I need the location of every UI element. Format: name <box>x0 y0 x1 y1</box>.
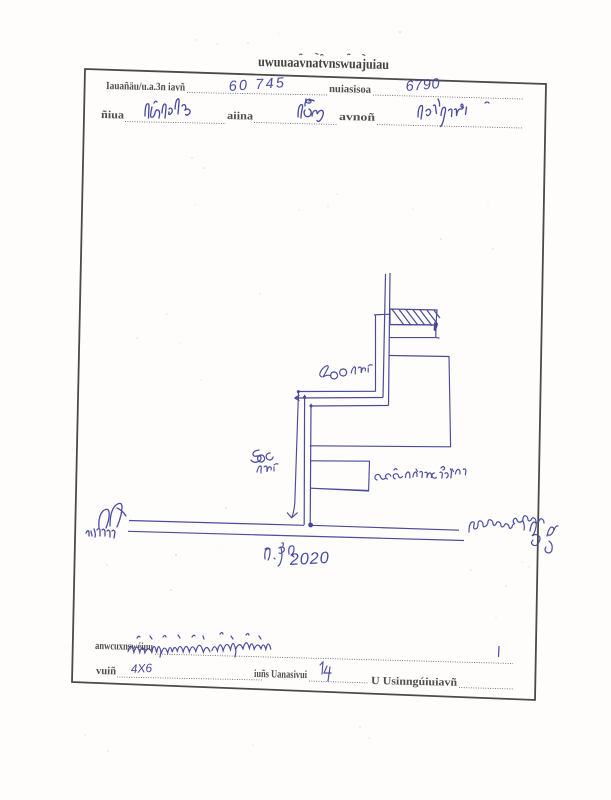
svg-text:vuiñ: vuiñ <box>96 665 116 677</box>
svg-text:nuiasisoa: nuiasisoa <box>329 83 372 96</box>
svg-text:uwuuaavnatvnswuajuiau: uwuuaavnatvnswuajuiau <box>258 55 389 73</box>
svg-text:4X6: 4X6 <box>130 661 152 676</box>
svg-text:2020: 2020 <box>288 549 330 569</box>
svg-text:aiina: aiina <box>227 110 254 123</box>
svg-text:U Usinngúiuiavñ: U Usinngúiuiavñ <box>371 675 457 689</box>
svg-text:ñiua: ñiua <box>101 109 125 121</box>
svg-text:Iauañäu/u.a.3n iavñ: Iauañäu/u.a.3n iavñ <box>106 80 185 94</box>
svg-text:avnoñ: avnoñ <box>339 111 375 124</box>
svg-text:6790: 6790 <box>405 76 441 95</box>
svg-text:iuñs Uanasivui: iuñs Uanasivui <box>254 668 307 681</box>
